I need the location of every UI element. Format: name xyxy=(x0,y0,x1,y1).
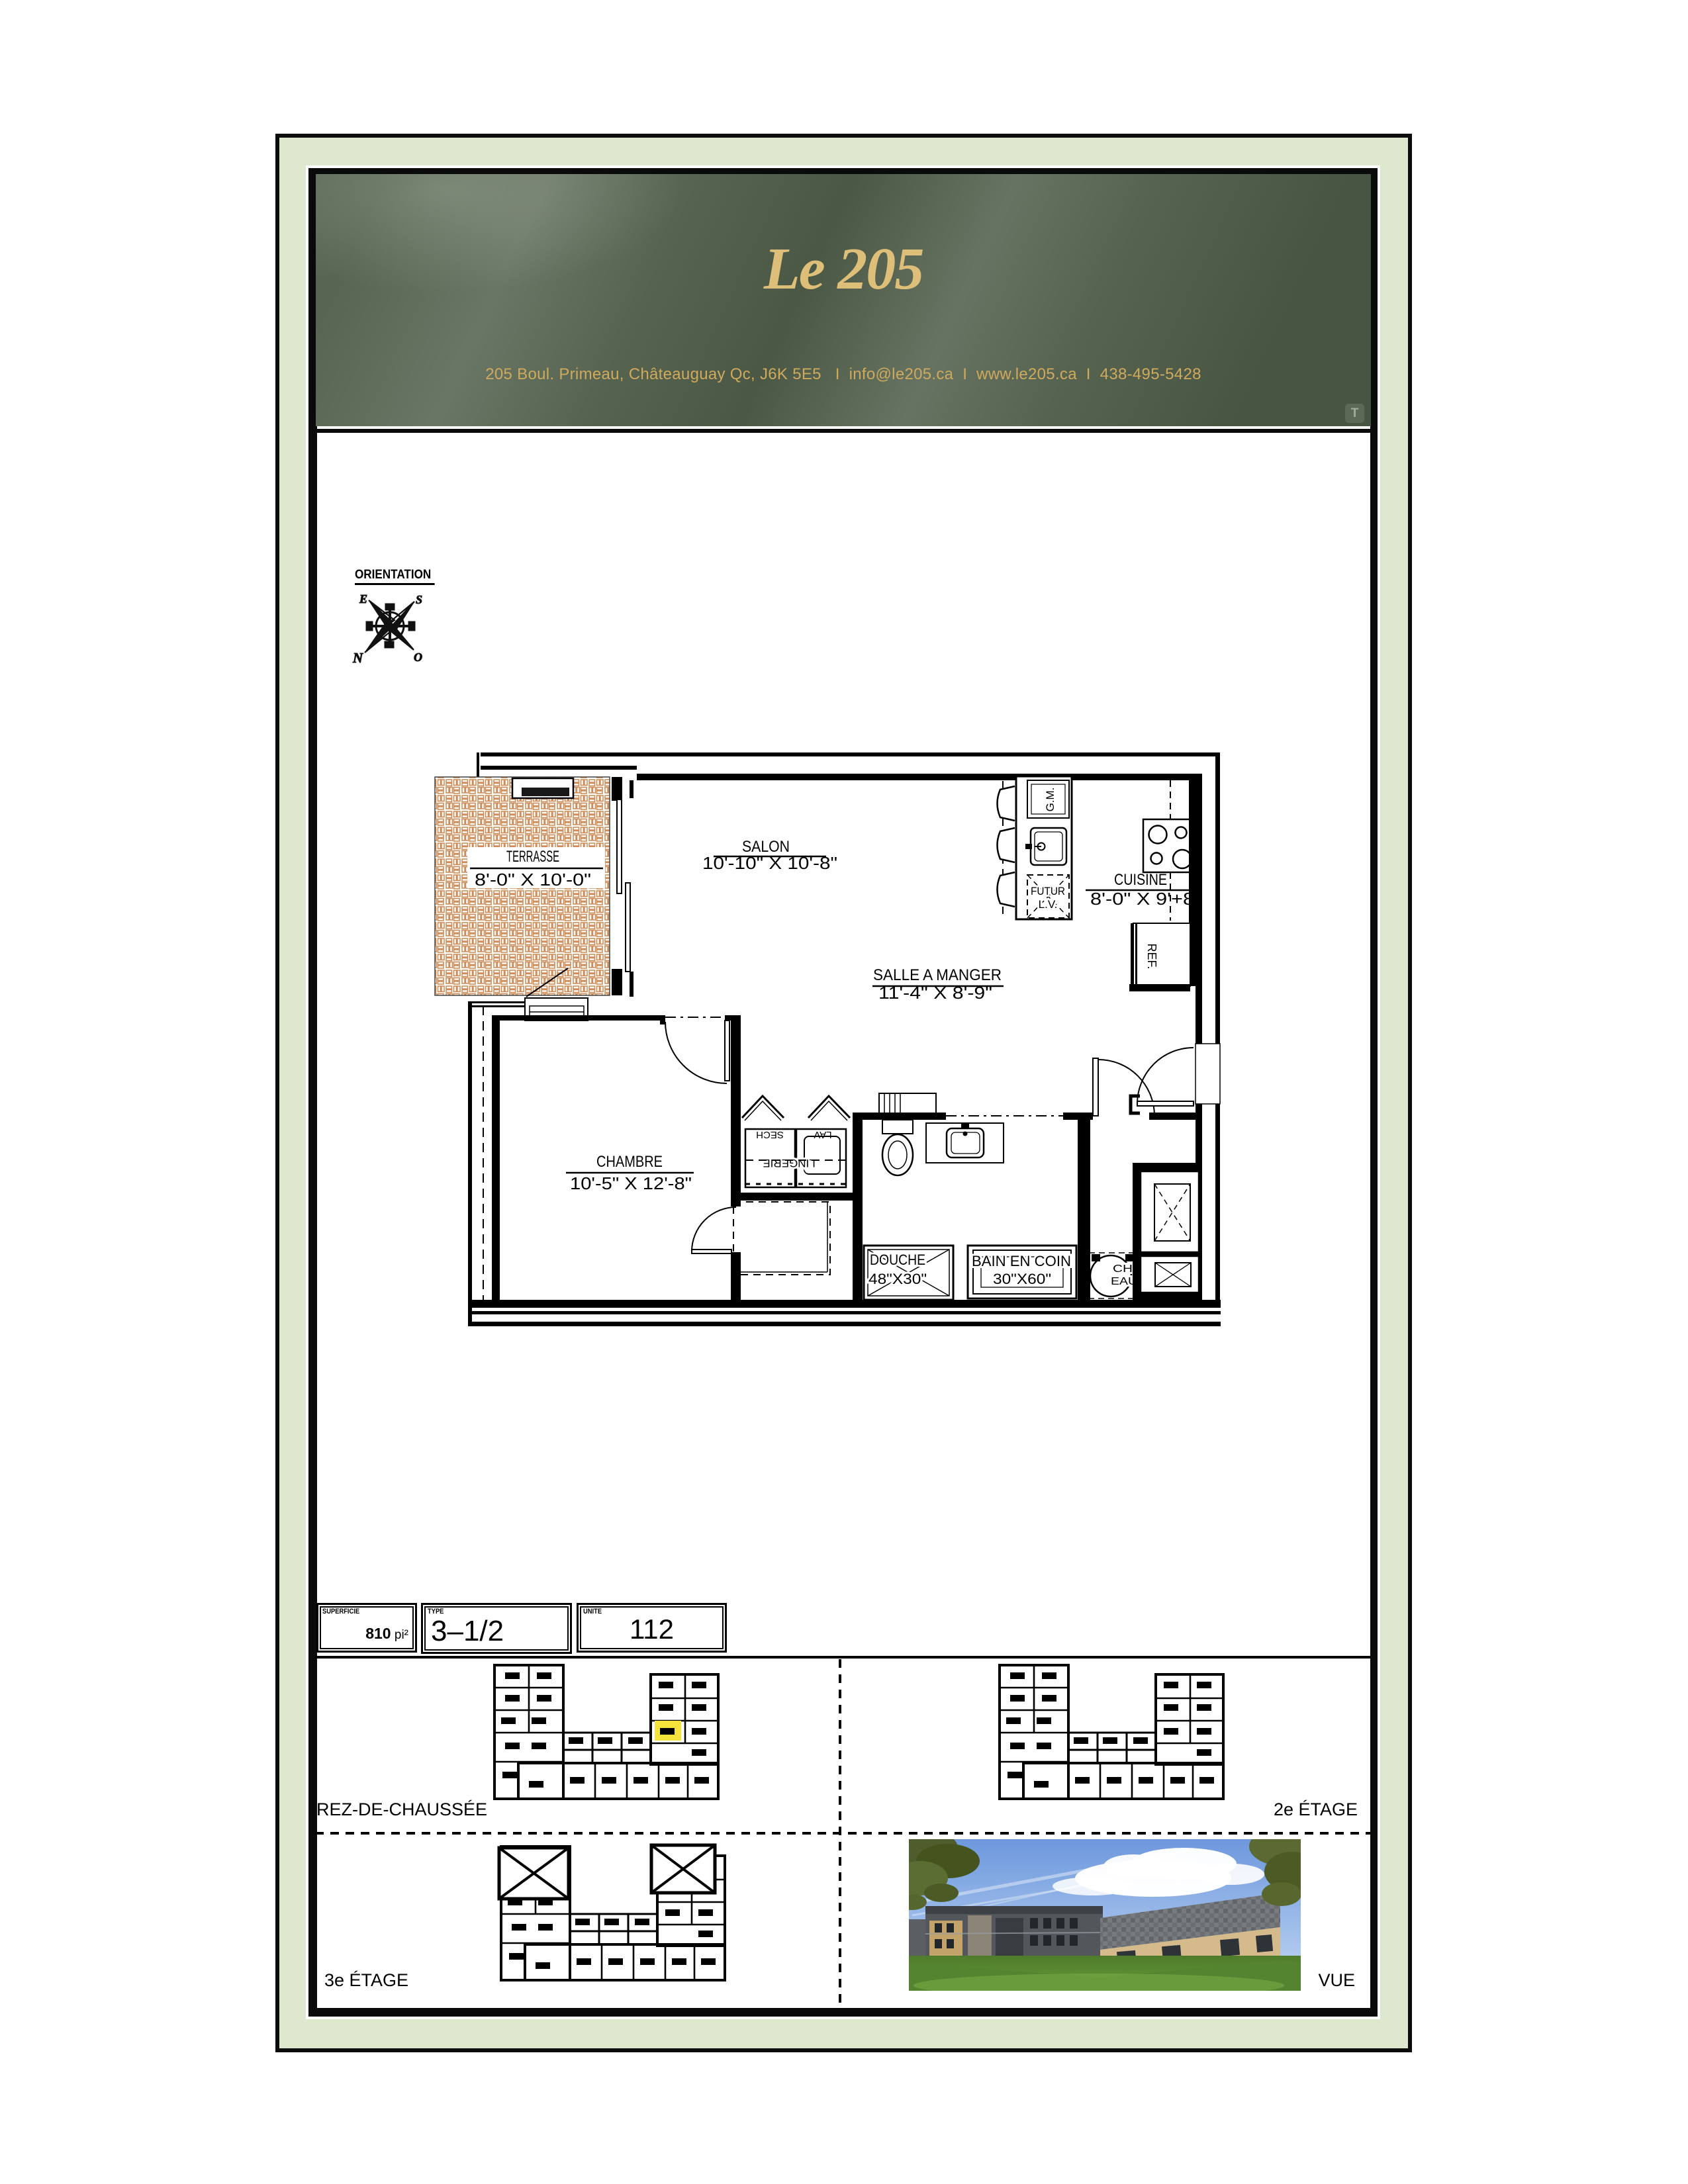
svg-text:30"X60": 30"X60" xyxy=(993,1271,1051,1287)
svg-text:10'-5" X 12'-8": 10'-5" X 12'-8" xyxy=(570,1173,692,1193)
svg-text:VUE: VUE xyxy=(1318,1970,1355,1990)
svg-text:3e ÉTAGE: 3e ÉTAGE xyxy=(324,1970,408,1990)
svg-text:LINGERIE: LINGERIE xyxy=(763,1157,815,1169)
svg-text:G.M.: G.M. xyxy=(1044,788,1056,812)
svg-text:DOUCHE: DOUCHE xyxy=(870,1251,925,1268)
svg-text:11'-4" X 8'-9": 11'-4" X 8'-9" xyxy=(878,983,992,1003)
svg-text:8'-0" X 10'-0": 8'-0" X 10'-0" xyxy=(475,870,591,889)
svg-text:O: O xyxy=(414,651,422,664)
svg-text:SALLE A MANGER: SALLE A MANGER xyxy=(873,966,1002,984)
svg-text:SECH: SECH xyxy=(756,1129,784,1140)
svg-text:2e ÉTAGE: 2e ÉTAGE xyxy=(1274,1799,1358,1819)
svg-text:L.V.: L.V. xyxy=(1039,898,1058,911)
svg-text:E: E xyxy=(359,592,367,606)
svg-text:FUTUR: FUTUR xyxy=(1031,885,1065,897)
svg-text:N: N xyxy=(352,650,363,666)
svg-text:REF.: REF. xyxy=(1145,943,1158,969)
svg-text:S: S xyxy=(416,593,422,606)
svg-text:TERRASSE: TERRASSE xyxy=(506,848,559,866)
svg-text:48"X30": 48"X30" xyxy=(868,1271,927,1287)
svg-text:REZ-DE-CHAUSSÉE: REZ-DE-CHAUSSÉE xyxy=(316,1799,487,1819)
svg-text:CHAMBRE: CHAMBRE xyxy=(596,1153,663,1171)
svg-text:10'-10" X 10'-8": 10'-10" X 10'-8" xyxy=(702,853,837,873)
svg-text:LAV: LAV xyxy=(814,1129,831,1140)
svg-text:BAIN EN COIN: BAIN EN COIN xyxy=(972,1253,1071,1269)
svg-text:CUISINE: CUISINE xyxy=(1114,871,1167,889)
svg-text:CH: CH xyxy=(1113,1263,1133,1275)
svg-text:8'-0" X 9'+8": 8'-0" X 9'+8" xyxy=(1090,889,1201,909)
